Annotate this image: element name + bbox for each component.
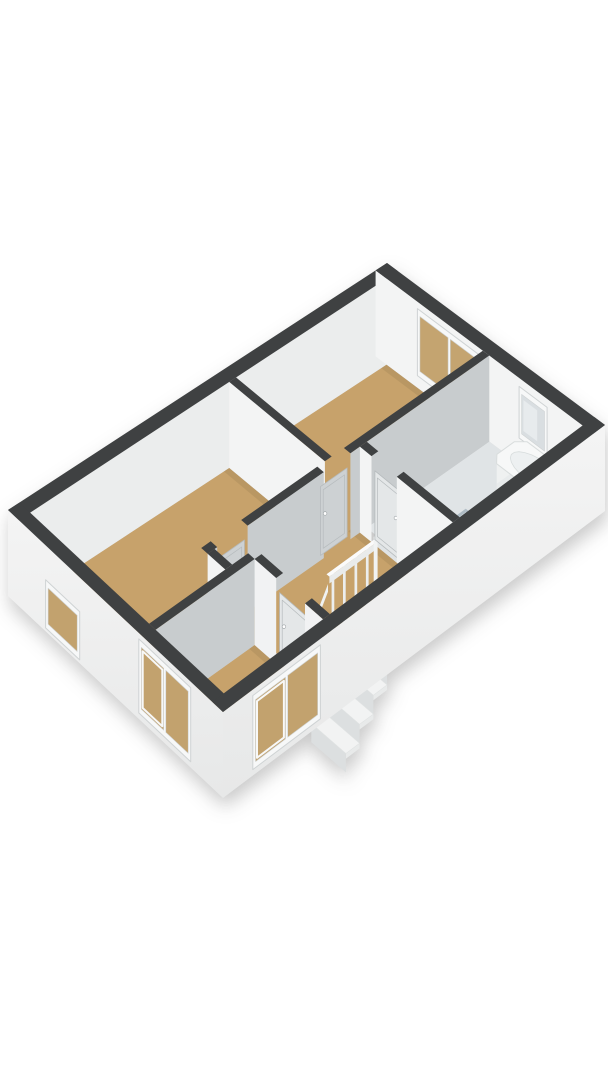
floorplan-viewer xyxy=(0,0,608,1080)
floorplan-3d-canvas xyxy=(0,0,608,1080)
